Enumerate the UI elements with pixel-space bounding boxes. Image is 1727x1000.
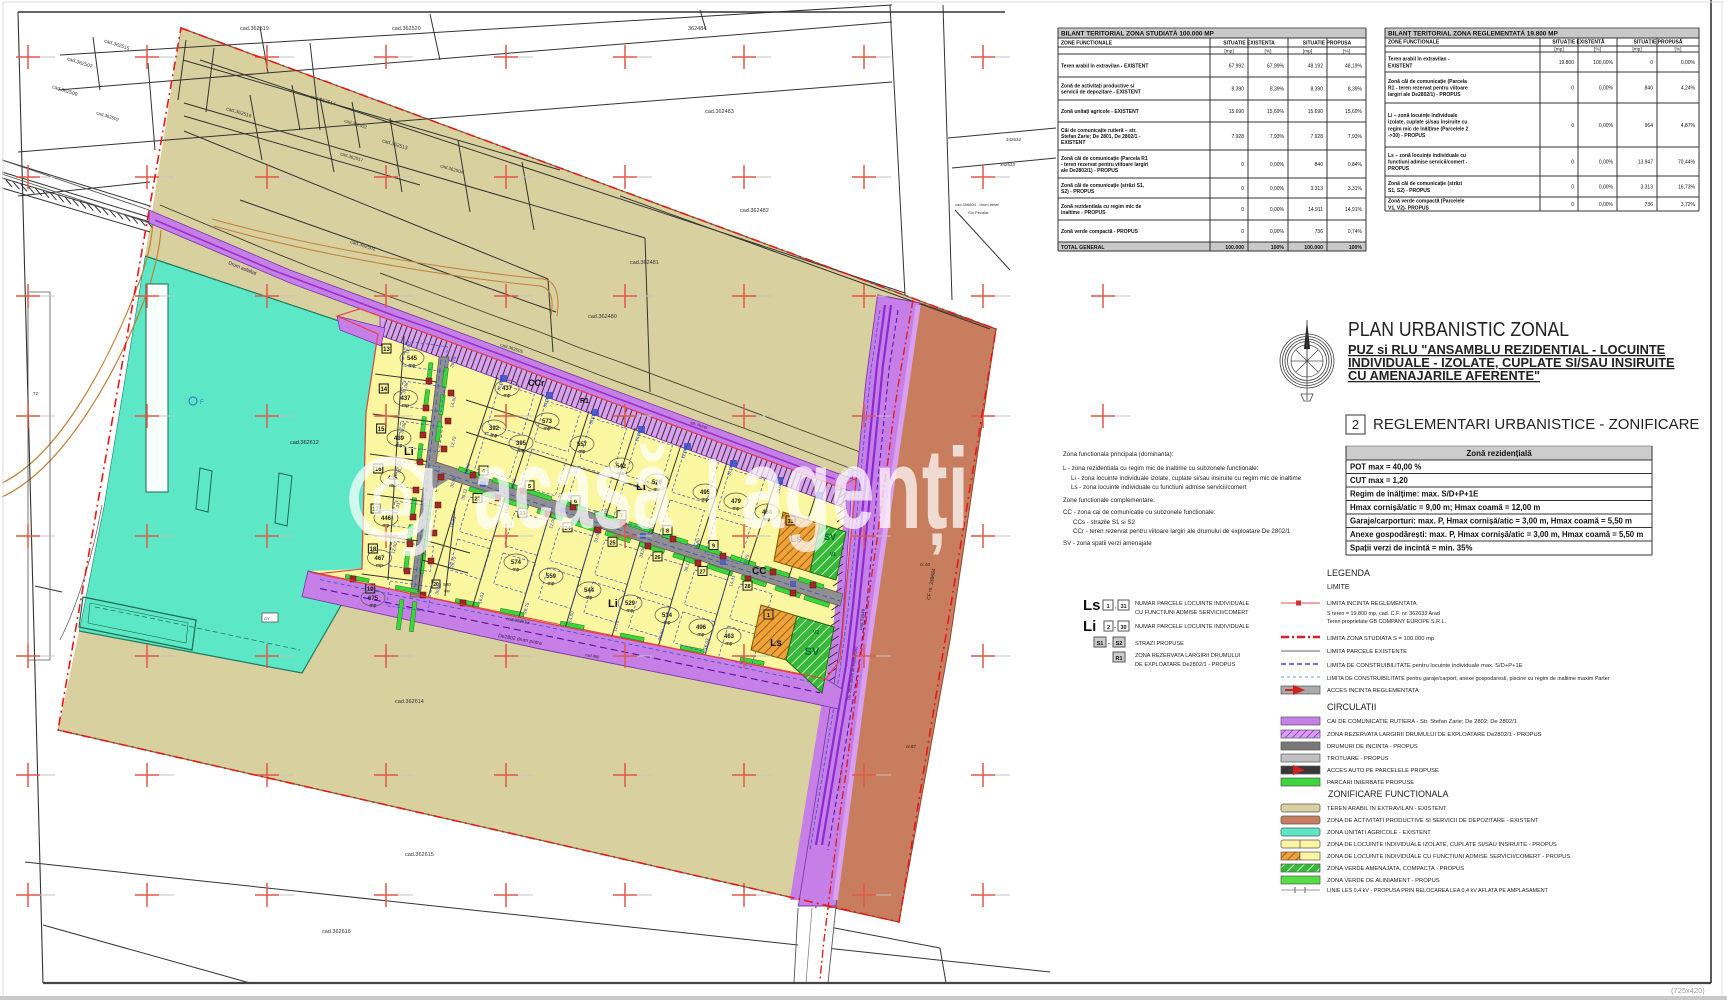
svg-text:[mp]: [mp] bbox=[1632, 47, 1641, 53]
svg-text:13.947: 13.947 bbox=[1638, 160, 1654, 166]
svg-text:CC - zona cai de comunicatie c: CC - zona cai de comunicatie cu subzonel… bbox=[1063, 509, 1216, 516]
svg-text:BILANȚ TERITORIAL ZONA REGLEME: BILANȚ TERITORIAL ZONA REGLEMENTATĂ 19.8… bbox=[1388, 29, 1558, 38]
svg-text:CIRCULATII: CIRCULATII bbox=[1327, 702, 1376, 712]
svg-text:NUMAR PARCELE LOCUINTE INDIVID: NUMAR PARCELE LOCUINTE INDIVIDUALE bbox=[1135, 624, 1250, 630]
svg-text:cad.362614: cad.362614 bbox=[395, 699, 424, 705]
svg-text:342632: 342632 bbox=[1006, 137, 1022, 142]
svg-text:Zonă verde compactă - PROPUS: Zonă verde compactă - PROPUS bbox=[1061, 229, 1139, 235]
svg-text:Zonă căi de comunicație (străz: Zonă căi de comunicație (străzi bbox=[1388, 181, 1463, 187]
svg-text:SV - zona spatii verzi amenaja: SV - zona spatii verzi amenajate bbox=[1063, 540, 1152, 547]
svg-text:496: 496 bbox=[696, 625, 707, 631]
svg-text:446: 446 bbox=[381, 516, 392, 522]
svg-text:Sîn.Pecalat: Sîn.Pecalat bbox=[968, 210, 989, 215]
svg-text:mp: mp bbox=[726, 641, 733, 647]
svg-text:Zonă unitați agricole - EXISTE: Zonă unitați agricole - EXISTENT bbox=[1061, 109, 1139, 115]
svg-text:1: 1 bbox=[1106, 604, 1109, 610]
svg-text:7.928: 7.928 bbox=[1231, 134, 1244, 140]
svg-text:0,00%: 0,00% bbox=[1599, 86, 1614, 92]
svg-text:[%]: [%] bbox=[1594, 47, 1601, 53]
svg-text:840: 840 bbox=[1315, 162, 1324, 168]
svg-text:CC: CC bbox=[752, 566, 766, 577]
svg-text:48.192: 48.192 bbox=[1308, 64, 1324, 70]
svg-text:ZONE FUNCTIONALE: ZONE FUNCTIONALE bbox=[1388, 40, 1440, 46]
svg-text:mp: mp bbox=[627, 608, 634, 614]
svg-text:CCr: CCr bbox=[528, 378, 545, 388]
svg-text:Teren arabil în extravilan - E: Teren arabil în extravilan - EXISTENT bbox=[1061, 64, 1148, 70]
svg-text:0,00%: 0,00% bbox=[1270, 229, 1285, 235]
svg-text:Teren proprietate GB COMPANY E: Teren proprietate GB COMPANY EUROPE S.R.… bbox=[1327, 619, 1446, 625]
svg-text:NUMAR PARCELE LOCUINTE INDIVID: NUMAR PARCELE LOCUINTE INDIVIDUALE bbox=[1135, 601, 1250, 607]
svg-text:BILANT TERITORIAL ZONA STUDIAT: BILANT TERITORIAL ZONA STUDIATĂ 100.000 … bbox=[1061, 29, 1215, 38]
svg-text:14: 14 bbox=[380, 387, 387, 393]
svg-text:mp: mp bbox=[586, 595, 593, 601]
svg-text:S2) - PROPUS: S2) - PROPUS bbox=[1061, 189, 1095, 195]
svg-text:nr.40: nr.40 bbox=[920, 562, 931, 567]
svg-text:mp: mp bbox=[376, 563, 383, 569]
svg-text:cad.362483: cad.362483 bbox=[705, 109, 734, 115]
svg-text:0,00%: 0,00% bbox=[1270, 162, 1285, 168]
svg-text:nr.87: nr.87 bbox=[906, 744, 917, 749]
svg-text:ZONE FUNCTIONALE: ZONE FUNCTIONALE bbox=[1061, 41, 1113, 47]
svg-text:Li - zona locuinte individuale: Li - zona locuinte individuale izolate, … bbox=[1071, 475, 1302, 482]
svg-text:0: 0 bbox=[1571, 160, 1574, 166]
svg-text:Zonă verde compactă (Parcelele: Zonă verde compactă (Parcelele bbox=[1388, 199, 1465, 205]
svg-text:F: F bbox=[200, 400, 204, 406]
svg-text:580: 580 bbox=[443, 582, 451, 587]
svg-text:0,84%: 0,84% bbox=[1348, 162, 1363, 168]
svg-text:544: 544 bbox=[584, 588, 595, 594]
svg-text:Hmax cornișă/atic = 9,00 m; Hm: Hmax cornișă/atic = 9,00 m; Hmax coamă =… bbox=[1350, 503, 1540, 512]
svg-text:[mp]: [mp] bbox=[1224, 49, 1233, 55]
svg-text:0: 0 bbox=[1650, 60, 1653, 66]
svg-text:Li – zonă locuințe individuale: Li – zonă locuințe individuale bbox=[1388, 113, 1458, 119]
svg-text:840: 840 bbox=[1645, 86, 1654, 92]
svg-text:mp: mp bbox=[698, 632, 705, 638]
svg-text:ZONA DE LOCUINTE INDIVIDUALE I: ZONA DE LOCUINTE INDIVIDUALE IZOLATE, CU… bbox=[1327, 842, 1557, 848]
svg-text:Ls: Ls bbox=[770, 638, 782, 649]
svg-text:437: 437 bbox=[400, 396, 411, 402]
svg-text:463: 463 bbox=[724, 634, 735, 640]
svg-text:736: 736 bbox=[1645, 202, 1654, 208]
svg-text:15.690: 15.690 bbox=[1229, 109, 1245, 115]
svg-text:(725x420): (725x420) bbox=[1671, 986, 1705, 995]
svg-text:PROPUS: PROPUS bbox=[1388, 166, 1410, 172]
svg-text:2: 2 bbox=[1352, 417, 1359, 432]
svg-text:CCr - teren rezervat pentru vi: CCr - teren rezervat pentru viitoare lar… bbox=[1073, 528, 1291, 535]
svg-text:GY: GY bbox=[264, 616, 270, 621]
svg-text:LIMITA DE CONSTRUIBILITATE pen: LIMITA DE CONSTRUIBILITATE pentru garaje… bbox=[1327, 676, 1610, 682]
svg-text:[%]: [%] bbox=[1265, 49, 1272, 55]
svg-text:DRUMURI DE INCINTA - PROPUS: DRUMURI DE INCINTA - PROPUS bbox=[1327, 744, 1418, 750]
svg-text:0: 0 bbox=[1571, 185, 1574, 191]
svg-text:19.800: 19.800 bbox=[1559, 60, 1575, 66]
svg-text:cad.362482: cad.362482 bbox=[740, 208, 769, 214]
svg-text:0,00%: 0,00% bbox=[1270, 207, 1285, 213]
svg-text:cad.362520: cad.362520 bbox=[392, 26, 421, 32]
svg-text:mp: mp bbox=[513, 567, 520, 573]
svg-text:7,93%: 7,93% bbox=[1270, 134, 1285, 140]
svg-text:cad.362612: cad.362612 bbox=[290, 440, 319, 446]
svg-text:Anexe gospodărești: max. P, Hm: Anexe gospodărești: max. P, Hmax cornișă… bbox=[1350, 530, 1643, 539]
svg-text:0: 0 bbox=[1571, 123, 1574, 129]
svg-text:72: 72 bbox=[33, 391, 39, 396]
svg-text:14,91%: 14,91% bbox=[1345, 207, 1363, 213]
svg-text:mp: mp bbox=[664, 620, 671, 626]
svg-text:0,00%: 0,00% bbox=[1599, 123, 1614, 129]
svg-text:30: 30 bbox=[1120, 625, 1126, 631]
svg-text:0,00%: 0,00% bbox=[1599, 160, 1614, 166]
svg-text:L - zona rezidentiala cu regim: L - zona rezidentiala cu regim mic de in… bbox=[1063, 465, 1259, 472]
svg-text:100%: 100% bbox=[1349, 245, 1363, 251]
svg-text:mp: mp bbox=[504, 393, 511, 399]
svg-text:Li: Li bbox=[608, 598, 618, 610]
svg-text:EXISTENT: EXISTENT bbox=[1061, 140, 1085, 146]
svg-text:9: 9 bbox=[712, 544, 715, 550]
svg-text:7,93%: 7,93% bbox=[1348, 134, 1363, 140]
svg-text:439: 439 bbox=[394, 436, 405, 442]
svg-text:0: 0 bbox=[1571, 202, 1574, 208]
svg-text:0: 0 bbox=[1571, 86, 1574, 92]
svg-text:TROTUARE - PROPUS: TROTUARE - PROPUS bbox=[1327, 756, 1389, 762]
svg-text:0: 0 bbox=[1241, 207, 1244, 213]
svg-text:559: 559 bbox=[546, 574, 557, 580]
svg-text:ZONIFICARE FUNCTIONALA: ZONIFICARE FUNCTIONALA bbox=[1328, 789, 1449, 799]
svg-text:48,19%: 48,19% bbox=[1345, 64, 1363, 70]
svg-text:R1 - teren rezervat pentru vii: R1 - teren rezervat pentru viitoare bbox=[1388, 86, 1468, 92]
svg-text:100.000: 100.000 bbox=[1225, 245, 1244, 251]
svg-text:67,99%: 67,99% bbox=[1267, 64, 1285, 70]
svg-text:CU AMENAJARILE AFERENTE": CU AMENAJARILE AFERENTE" bbox=[1348, 368, 1540, 383]
svg-text:31: 31 bbox=[1120, 604, 1126, 610]
svg-text:467: 467 bbox=[374, 556, 385, 562]
svg-text:cad.356804 - drum betat: cad.356804 - drum betat bbox=[955, 202, 999, 207]
svg-text:Ls: Ls bbox=[1083, 597, 1101, 614]
svg-text:0: 0 bbox=[1241, 186, 1244, 192]
svg-text:mp: mp bbox=[409, 363, 416, 369]
svg-text:[mp]: [mp] bbox=[1303, 49, 1312, 55]
svg-text:0: 0 bbox=[1241, 162, 1244, 168]
svg-text:cad.362519: cad.362519 bbox=[240, 26, 269, 32]
svg-text:3,72%: 3,72% bbox=[1681, 202, 1696, 208]
svg-text:DE EXPLOATARE De2802/1 - PROPU: DE EXPLOATARE De2802/1 - PROPUS bbox=[1135, 662, 1235, 668]
svg-text:736: 736 bbox=[1315, 229, 1324, 235]
svg-text:agenți: agenți bbox=[741, 426, 969, 555]
svg-text:26: 26 bbox=[654, 555, 660, 561]
svg-text:14.911: 14.911 bbox=[1308, 207, 1323, 213]
svg-text:[%]: [%] bbox=[1343, 49, 1350, 55]
svg-text:28: 28 bbox=[744, 584, 750, 590]
svg-text:4,87%: 4,87% bbox=[1681, 123, 1696, 129]
svg-text:STRAZI PROPUSE: STRAZI PROPUSE bbox=[1135, 641, 1184, 647]
svg-text:1: 1 bbox=[767, 613, 770, 619]
svg-text:PARCARI INIERBATE PROPUSE: PARCARI INIERBATE PROPUSE bbox=[1327, 780, 1414, 786]
svg-text:ZONA UNITATI AGRICOLE - EXISTE: ZONA UNITATI AGRICOLE - EXISTENT bbox=[1327, 830, 1431, 836]
svg-text:SITUATIE EXISTENTA: SITUATIE EXISTENTA bbox=[1223, 41, 1275, 47]
svg-text:0: 0 bbox=[1241, 229, 1244, 235]
svg-text:2: 2 bbox=[1107, 625, 1110, 631]
svg-text:cad.362615: cad.362615 bbox=[405, 852, 434, 858]
svg-text:Zone functionale complementare: Zone functionale complementare: bbox=[1063, 497, 1155, 504]
svg-text:13: 13 bbox=[383, 347, 390, 353]
svg-text:ZONA VERDE AMENAJATA, COMPACTA: ZONA VERDE AMENAJATA, COMPACTA - PROPUS bbox=[1327, 866, 1464, 872]
svg-text:LINIE LES 0,4 kV - PROPUSA PRI: LINIE LES 0,4 kV - PROPUSA PRIN RELOCARE… bbox=[1327, 888, 1549, 894]
svg-text:SITUATIE PROPUSA: SITUATIE PROPUSA bbox=[1303, 41, 1352, 47]
svg-text:V2: V2 bbox=[813, 630, 819, 636]
svg-text:15.690: 15.690 bbox=[1308, 109, 1324, 115]
svg-text:ZONA REZERVATA LARGIRII DRUMUL: ZONA REZERVATA LARGIRII DRUMULUI DE EXPL… bbox=[1327, 732, 1542, 738]
svg-text:PLAN URBANISTIC ZONAL: PLAN URBANISTIC ZONAL bbox=[1348, 319, 1569, 341]
svg-text:LIMITA DE CONSTRUIBILITATE pen: LIMITA DE CONSTRUIBILITATE pentru locuin… bbox=[1327, 663, 1523, 669]
svg-text:362484: 362484 bbox=[688, 26, 706, 32]
svg-text:70,44%: 70,44% bbox=[1678, 160, 1696, 166]
svg-text:529: 529 bbox=[625, 601, 636, 607]
svg-text:4,24%: 4,24% bbox=[1681, 86, 1696, 92]
svg-text:ACCES AUTO PE PARCELELE PROPUS: ACCES AUTO PE PARCELELE PROPUSE bbox=[1327, 768, 1439, 774]
svg-text:cad.362481: cad.362481 bbox=[630, 260, 659, 266]
svg-text:964: 964 bbox=[1645, 123, 1654, 129]
svg-text:3.313: 3.313 bbox=[1310, 186, 1323, 192]
svg-text:Zonă rezidențială: Zonă rezidențială bbox=[1466, 449, 1532, 458]
svg-text:CCs - strazile S1 si S2: CCs - strazile S1 si S2 bbox=[1073, 519, 1135, 526]
svg-text:izolate, cuplate și/sau înșiru: izolate, cuplate și/sau înșiruite cu bbox=[1388, 120, 1467, 126]
svg-text:ZONA DE LOCUINTE INDIVIDUALE C: ZONA DE LOCUINTE INDIVIDUALE CU FUNCTIUN… bbox=[1327, 854, 1570, 860]
svg-text:ZONA VERDE DE ALINIAMENT - PRO: ZONA VERDE DE ALINIAMENT - PROPUS bbox=[1327, 878, 1440, 884]
svg-text:ZONA DE ACTIVITATI PRODUCTIVE: ZONA DE ACTIVITATI PRODUCTIVE SI SERVICI… bbox=[1327, 818, 1539, 824]
svg-text:67.992: 67.992 bbox=[1229, 64, 1245, 70]
svg-text:27: 27 bbox=[699, 570, 705, 576]
svg-text:0,00%: 0,00% bbox=[1681, 60, 1696, 66]
svg-text:8.390: 8.390 bbox=[1310, 87, 1323, 93]
svg-text:15,69%: 15,69% bbox=[1345, 109, 1363, 115]
svg-text:inaltime - PROPUS: inaltime - PROPUS bbox=[1061, 210, 1106, 216]
svg-text:mp: mp bbox=[444, 588, 450, 593]
svg-text:CAI DE COMUNICATIE RUTIERA - S: CAI DE COMUNICATIE RUTIERA - Str. Stefan… bbox=[1327, 719, 1517, 725]
svg-text:100,00%: 100,00% bbox=[1593, 60, 1613, 66]
svg-text:SV: SV bbox=[805, 646, 820, 658]
svg-text:mp: mp bbox=[733, 506, 740, 512]
svg-text:mp: mp bbox=[702, 497, 709, 503]
svg-text:Zona functionala principala (d: Zona functionala principala (dominanta): bbox=[1063, 451, 1174, 458]
svg-text:ACCES INCINTA REGLEMENTATA: ACCES INCINTA REGLEMENTATA bbox=[1327, 688, 1419, 694]
svg-text:8,39%: 8,39% bbox=[1270, 87, 1285, 93]
svg-text:Garaje/carporturi: max. P, Hma: Garaje/carporturi: max. P, Hmax cornișă/… bbox=[1350, 517, 1632, 526]
svg-text:CU FUNCTIUNI ADMISE SERVICII/C: CU FUNCTIUNI ADMISE SERVICII/COMERT bbox=[1135, 610, 1249, 616]
svg-text:437: 437 bbox=[502, 386, 513, 392]
svg-text:545: 545 bbox=[407, 356, 418, 362]
svg-text:Zonă căi de comunicație (Parce: Zonă căi de comunicație (Parcela bbox=[1388, 79, 1467, 85]
svg-text:S teren = 19.800 mp, cad. C.F.: S teren = 19.800 mp, cad. C.F. nr. 36263… bbox=[1327, 611, 1440, 617]
svg-text:TOTAL GENERAL: TOTAL GENERAL bbox=[1061, 245, 1105, 251]
svg-text:S2: S2 bbox=[1116, 641, 1123, 647]
svg-text:8,39%: 8,39% bbox=[1348, 87, 1363, 93]
svg-text:cad.362480: cad.362480 bbox=[588, 314, 617, 320]
svg-text:0,00%: 0,00% bbox=[1599, 185, 1614, 191]
svg-text:574: 574 bbox=[511, 560, 522, 566]
svg-text:573: 573 bbox=[542, 419, 553, 425]
svg-text:EXISTENT: EXISTENT bbox=[1388, 63, 1412, 69]
svg-text:LEGENDA: LEGENDA bbox=[1327, 568, 1370, 578]
svg-text:cad.362616: cad.362616 bbox=[322, 929, 351, 935]
svg-text:Spații verzi de incintă = min.: Spații verzi de incintă = min. 35% bbox=[1350, 544, 1472, 553]
svg-text:8.390: 8.390 bbox=[1231, 87, 1244, 93]
svg-text:SITUAȚIE PROPUSĂ: SITUAȚIE PROPUSĂ bbox=[1634, 39, 1683, 46]
svg-text:S1, S2) - PROPUS: S1, S2) - PROPUS bbox=[1388, 188, 1431, 194]
svg-text:ZONA REZERVATA LARGIRII DRUMUL: ZONA REZERVATA LARGIRII DRUMULUI bbox=[1135, 653, 1241, 659]
svg-text:15: 15 bbox=[378, 427, 385, 433]
svg-text:0,74%: 0,74% bbox=[1348, 229, 1363, 235]
svg-text:3,31%: 3,31% bbox=[1348, 186, 1363, 192]
svg-text:0,00%: 0,00% bbox=[1270, 186, 1285, 192]
svg-text:16,73%: 16,73% bbox=[1678, 185, 1696, 191]
svg-text:100%: 100% bbox=[1271, 245, 1285, 251]
svg-text:Ls - zona locuinte individuale: Ls - zona locuinte individuale cu functi… bbox=[1071, 484, 1247, 491]
svg-text:0,00%: 0,00% bbox=[1599, 202, 1614, 208]
svg-text:acasă: acasă bbox=[474, 426, 673, 553]
svg-text:servicii de depozitare - EXIST: servicii de depozitare - EXISTENT bbox=[1061, 90, 1141, 96]
svg-text:3.313: 3.313 bbox=[1640, 185, 1653, 191]
svg-text:LIMITE: LIMITE bbox=[1327, 584, 1350, 591]
svg-text:REGLEMENTARI URBANISTICE - ZON: REGLEMENTARI URBANISTICE - ZONIFICARE bbox=[1373, 416, 1699, 433]
svg-text:ale De2802/1) - PROPUS: ale De2802/1) - PROPUS bbox=[1061, 168, 1119, 174]
svg-text:largiri ale De2802/1) - PROPUS: largiri ale De2802/1) - PROPUS bbox=[1388, 92, 1461, 98]
svg-text:mp: mp bbox=[370, 603, 377, 609]
svg-text:[mp]: [mp] bbox=[1554, 47, 1563, 53]
svg-text:7.928: 7.928 bbox=[1310, 134, 1323, 140]
svg-text:Li: Li bbox=[1083, 618, 1096, 635]
svg-text:-: - bbox=[1108, 641, 1110, 647]
svg-text:mp: mp bbox=[548, 581, 555, 587]
svg-text:R1: R1 bbox=[1115, 656, 1122, 662]
svg-text:Regim de înălțime: max. S/D+P+: Regim de înălțime: max. S/D+P+1E bbox=[1350, 490, 1478, 499]
svg-text:LIMITA ZONA STUDIATA S = 100.: LIMITA ZONA STUDIATA S = 100.000 mp bbox=[1327, 636, 1434, 642]
svg-text:[%]: [%] bbox=[1675, 47, 1682, 53]
svg-text:675: 675 bbox=[368, 596, 379, 602]
svg-text:18: 18 bbox=[370, 547, 377, 553]
svg-text:SITUAȚIE EXISTENTĂ: SITUAȚIE EXISTENTĂ bbox=[1552, 39, 1605, 46]
svg-text:LIMITA INCINTA REGLEMENTATA: LIMITA INCINTA REGLEMENTATA bbox=[1327, 601, 1417, 607]
svg-text:regim mic de înălțime (Parcele: regim mic de înălțime (Parcelele 2 bbox=[1388, 126, 1469, 132]
svg-text:342633: 342633 bbox=[1000, 162, 1016, 167]
svg-text:R1: R1 bbox=[580, 398, 589, 405]
svg-text:-: - bbox=[1114, 625, 1116, 631]
svg-text:Teren arabil în extravilan -: Teren arabil în extravilan - bbox=[1388, 57, 1450, 63]
svg-text:15,69%: 15,69% bbox=[1267, 109, 1285, 115]
svg-text:POT max = 40,00 %: POT max = 40,00 % bbox=[1350, 463, 1421, 472]
svg-text:V1, V2)- PROPUS: V1, V2)- PROPUS bbox=[1388, 205, 1430, 211]
svg-text:100.000: 100.000 bbox=[1304, 245, 1323, 251]
svg-text:Ls – zonă locuințe individuale: Ls – zonă locuințe individuale cu bbox=[1388, 153, 1466, 159]
svg-text:514: 514 bbox=[662, 613, 673, 619]
svg-text:S1: S1 bbox=[1097, 641, 1104, 647]
svg-text:CUT max = 1,20: CUT max = 1,20 bbox=[1350, 476, 1409, 485]
svg-text:->30) - PROPUS: ->30) - PROPUS bbox=[1388, 133, 1426, 139]
svg-text:LIMITA PARCELE EXISTENTE: LIMITA PARCELE EXISTENTE bbox=[1327, 649, 1407, 655]
svg-text:TEREN ARABIL IN EXTRAVILAN - E: TEREN ARABIL IN EXTRAVILAN - EXISTENT bbox=[1327, 806, 1447, 812]
svg-text:Li: Li bbox=[404, 446, 414, 458]
svg-text:functiuni admise servicii/come: functiuni admise servicii/comert - bbox=[1388, 160, 1468, 166]
